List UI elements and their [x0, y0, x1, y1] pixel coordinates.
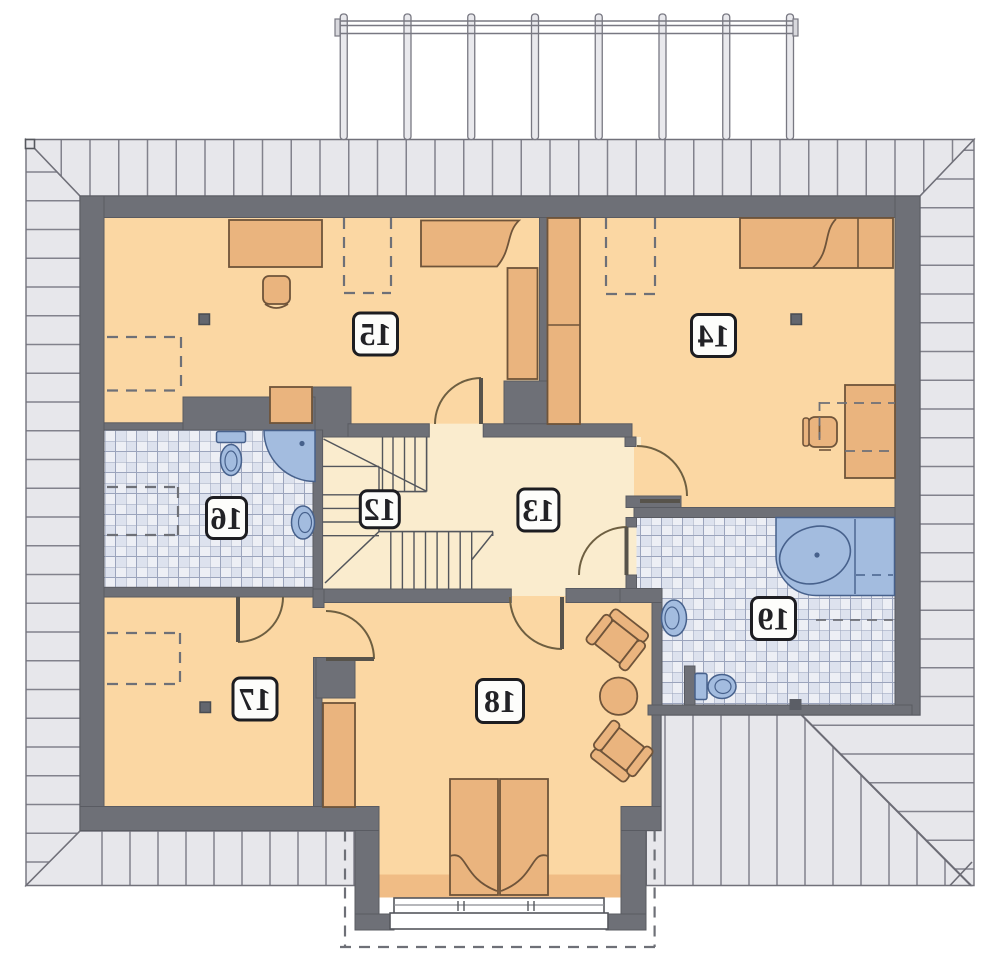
svg-text:13: 13 [522, 492, 554, 528]
svg-text:16: 16 [211, 500, 243, 536]
svg-text:19: 19 [758, 601, 790, 637]
svg-text:17: 17 [239, 681, 271, 717]
svg-text:18: 18 [484, 683, 516, 719]
svg-text:12: 12 [364, 491, 396, 527]
svg-text:14: 14 [698, 318, 730, 354]
svg-text:15: 15 [360, 316, 392, 352]
